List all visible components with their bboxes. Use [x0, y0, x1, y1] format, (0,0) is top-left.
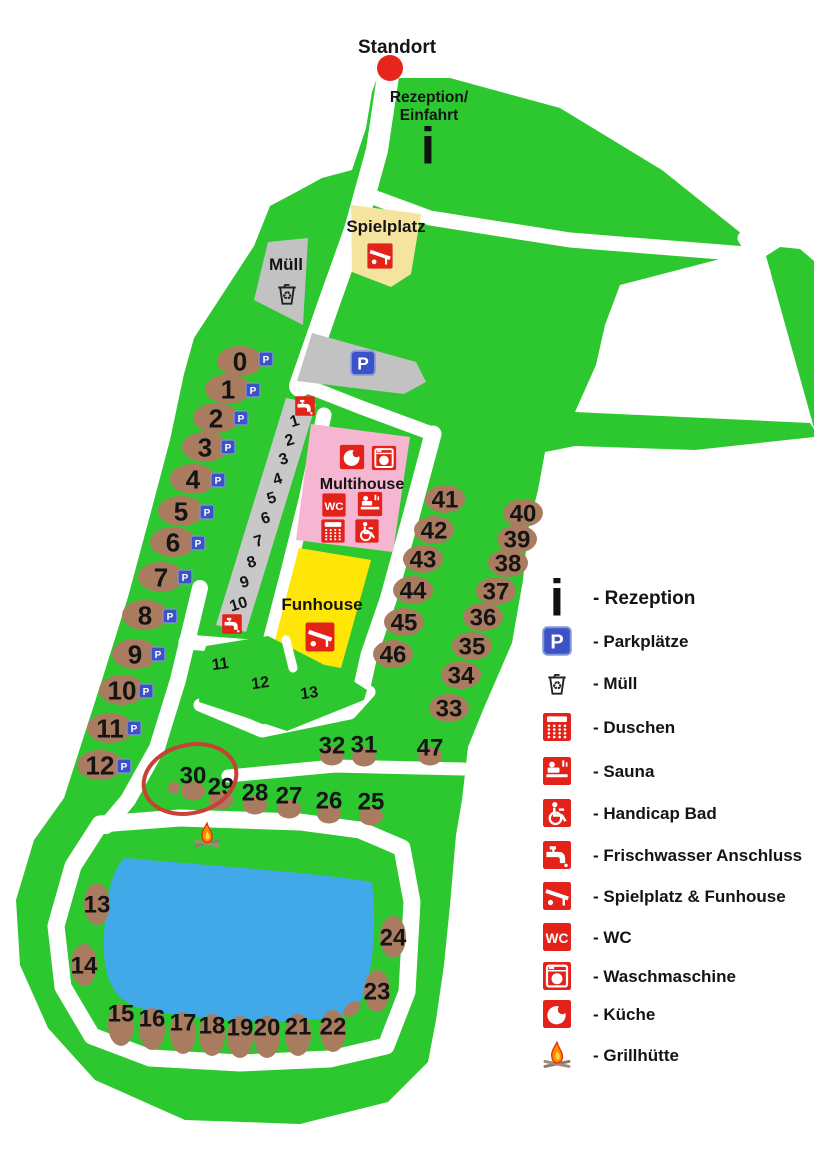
parking-icon: P: [221, 440, 235, 454]
site-number: 5: [174, 496, 188, 526]
site-number: 0: [233, 346, 247, 376]
parking-icon: P: [246, 383, 260, 397]
site-number: 47: [417, 735, 444, 762]
shower-icon: [321, 519, 344, 542]
standort-label: Standort: [358, 37, 437, 58]
site-number: 31: [351, 732, 378, 759]
parking-icon: P: [351, 351, 375, 375]
site-number: 7: [154, 562, 168, 592]
site-number: 37: [483, 579, 510, 606]
info-icon: i: [421, 116, 435, 174]
svg-text:♻: ♻: [282, 290, 292, 302]
legend-label: - WC: [593, 928, 632, 947]
site-number: 19: [227, 1015, 254, 1042]
site-number: 24: [380, 925, 407, 952]
site-number: 39: [504, 527, 531, 554]
site-31: 31: [351, 732, 378, 767]
site-number: 15: [108, 1001, 135, 1028]
site-number: 20: [254, 1015, 281, 1042]
site-number: 30: [180, 763, 207, 790]
parking-icon: P: [163, 609, 177, 623]
site-26: 26: [316, 788, 343, 824]
site-32: 32: [319, 733, 346, 766]
svg-text:P: P: [357, 354, 369, 374]
parking-icon: P: [191, 536, 205, 550]
spielplatz-label: Spielplatz: [346, 217, 425, 236]
parking-icon: P: [139, 684, 153, 698]
legend-label: - Parkplätze: [593, 632, 688, 651]
site-28: 28: [242, 780, 269, 815]
site-number: 29: [208, 774, 235, 801]
lake: [104, 858, 374, 1022]
site-number: 16: [139, 1006, 166, 1033]
svg-text:P: P: [195, 539, 202, 550]
svg-text:WC: WC: [546, 931, 569, 946]
site-number: 21: [285, 1014, 312, 1041]
site-number: 18: [199, 1013, 226, 1040]
site-number: 1: [221, 374, 235, 404]
map-geometry: i♻PWC123456789101112130P1P2P3P4P5P6P7P8P…: [16, 55, 814, 1124]
legend-label: - Frischwasser Anschluss: [593, 846, 802, 865]
svg-text:P: P: [263, 355, 270, 366]
legend-item-shower: - Duschen: [543, 713, 675, 741]
legend-label: - Sauna: [593, 762, 655, 781]
svg-text:P: P: [182, 573, 189, 584]
legend-label: - Duschen: [593, 718, 675, 737]
site-20: 20: [254, 1015, 281, 1058]
site-number: 28: [242, 780, 269, 807]
svg-text:P: P: [131, 724, 138, 735]
site-number: 3: [198, 432, 212, 462]
svg-text:P: P: [215, 476, 222, 487]
legend-item-handicap: - Handicap Bad: [543, 799, 717, 827]
multihouse-label: Multihouse: [320, 476, 405, 493]
site-number: 32: [319, 733, 346, 760]
campground-map-page: i♻PWC123456789101112130P1P2P3P4P5P6P7P8P…: [0, 0, 815, 1152]
kitchen-icon: [340, 445, 364, 469]
svg-text:P: P: [121, 762, 128, 773]
site-number: 34: [448, 663, 475, 690]
svg-text:WC: WC: [324, 501, 343, 513]
site-number: 25: [358, 789, 385, 816]
parking-icon: P: [117, 759, 131, 773]
site-25: 25: [358, 789, 385, 826]
parking-icon: P: [543, 627, 571, 655]
site-number: 38: [495, 551, 522, 578]
trash-icon: ♻: [548, 675, 566, 694]
legend-item-fire: - Grillhütte: [545, 1042, 679, 1066]
svg-text:i: i: [550, 568, 564, 626]
site-number: 12: [86, 750, 115, 780]
svg-text:♻: ♻: [552, 680, 562, 692]
site-number: 41: [432, 487, 459, 514]
site-number: 23: [364, 979, 391, 1006]
site-number: 43: [410, 547, 437, 574]
wc-icon: WC: [322, 493, 345, 516]
site-number: 2: [209, 403, 223, 433]
site-19: 19: [227, 1015, 254, 1058]
site-number: 40: [510, 501, 537, 528]
legend-label: - Rezeption: [593, 588, 695, 609]
site-16: 16: [139, 1006, 166, 1050]
site-number: 13: [84, 892, 111, 919]
parking-icon: P: [127, 721, 141, 735]
site-number: 6: [166, 527, 180, 557]
handicap-icon: [543, 799, 571, 827]
tap-icon: [543, 841, 571, 869]
site-number: 22: [320, 1014, 347, 1041]
legend-item-wc: WC- WC: [543, 923, 632, 951]
site-number: 14: [71, 953, 98, 980]
standort-dot: [377, 55, 403, 81]
svg-text:P: P: [155, 650, 162, 661]
svg-text:P: P: [143, 687, 150, 698]
site-number: 8: [138, 600, 152, 630]
site-number: 4: [186, 464, 201, 494]
legend-label: - Handicap Bad: [593, 804, 717, 823]
reception-label-line1: Rezeption/: [390, 89, 469, 106]
legend-item-slide: - Spielplatz & Funhouse: [543, 882, 786, 910]
site-number: 45: [391, 610, 418, 637]
site-number: 27: [276, 783, 303, 810]
site-number: 42: [421, 518, 448, 545]
svg-text:P: P: [167, 612, 174, 623]
zone-number: 11: [211, 655, 230, 674]
site-number: 46: [380, 642, 407, 669]
sauna-icon: [543, 757, 571, 785]
slide-icon: [367, 243, 392, 268]
parking-icon: P: [200, 505, 214, 519]
site-30: 30: [180, 763, 207, 801]
svg-text:P: P: [550, 632, 563, 654]
site-27: 27: [276, 783, 303, 819]
parking-icon: P: [151, 647, 165, 661]
kitchen-icon: [543, 1000, 571, 1028]
shower-icon: [543, 713, 571, 741]
legend-item-info: i- Rezeption: [550, 568, 696, 626]
svg-text:P: P: [204, 508, 211, 519]
svg-text:P: P: [250, 386, 257, 397]
svg-text:P: P: [225, 443, 232, 454]
site-number: 10: [108, 675, 137, 705]
funhouse-label: Funhouse: [281, 595, 362, 614]
parking-icon: P: [234, 411, 248, 425]
slide-icon: [543, 882, 571, 910]
legend-label: - Spielplatz & Funhouse: [593, 887, 786, 906]
site-15: 15: [108, 1001, 135, 1046]
parking-icon: P: [211, 473, 225, 487]
site-number: 44: [400, 578, 427, 605]
site-number: 9: [128, 639, 142, 669]
campground-map: i♻PWC123456789101112130P1P2P3P4P5P6P7P8P…: [0, 0, 815, 1152]
road-gap: [744, 238, 764, 272]
slide-icon: [306, 623, 335, 652]
svg-text:i: i: [421, 116, 435, 174]
info-icon: i: [550, 568, 564, 626]
legend-item-sauna: - Sauna: [543, 757, 655, 785]
legend-item-washer: - Waschmaschine: [543, 962, 736, 990]
washer-icon: [543, 962, 571, 990]
legend-item-parking: P- Parkplätze: [543, 627, 688, 655]
site-number: 26: [316, 788, 343, 815]
site-number: 35: [459, 634, 486, 661]
site-39: 39: [497, 525, 537, 554]
site-47: 47: [417, 735, 444, 766]
site-40: 40: [503, 499, 543, 528]
tap-icon: [222, 614, 242, 634]
reception-label-line2: Einfahrt: [400, 107, 459, 124]
site-number: 17: [170, 1010, 197, 1037]
terrain-east-arm: [766, 247, 814, 428]
legend-label: - Waschmaschine: [593, 967, 736, 986]
svg-text:P: P: [238, 414, 245, 425]
sauna-icon: [358, 492, 382, 516]
legend-item-tap: - Frischwasser Anschluss: [543, 841, 802, 869]
legend-label: - Küche: [593, 1005, 655, 1024]
zone-number: 13: [299, 684, 319, 703]
site-18: 18: [199, 1013, 226, 1056]
fire-icon: [545, 1042, 569, 1066]
tap-icon: [295, 396, 315, 416]
site-17: 17: [170, 1010, 197, 1054]
handicap-icon: [355, 519, 378, 542]
legend-label: - Grillhütte: [593, 1046, 679, 1065]
parking-icon: P: [259, 352, 273, 366]
wc-icon: WC: [543, 923, 571, 951]
muell-label: Müll: [269, 255, 303, 274]
legend: i- RezeptionP- Parkplätze♻- Müll- Dusche…: [543, 568, 802, 1066]
legend-label: - Müll: [593, 674, 637, 693]
site-number: 36: [470, 605, 497, 632]
zone-number: 12: [250, 674, 270, 693]
legend-item-kitchen: - Küche: [543, 1000, 655, 1028]
site-number: 11: [96, 713, 124, 743]
small-pitch-marker: [168, 782, 180, 794]
parking-icon: P: [178, 570, 192, 584]
site-number: 33: [436, 696, 463, 723]
legend-item-trash: ♻- Müll: [548, 674, 637, 694]
washer-icon: [372, 446, 396, 470]
